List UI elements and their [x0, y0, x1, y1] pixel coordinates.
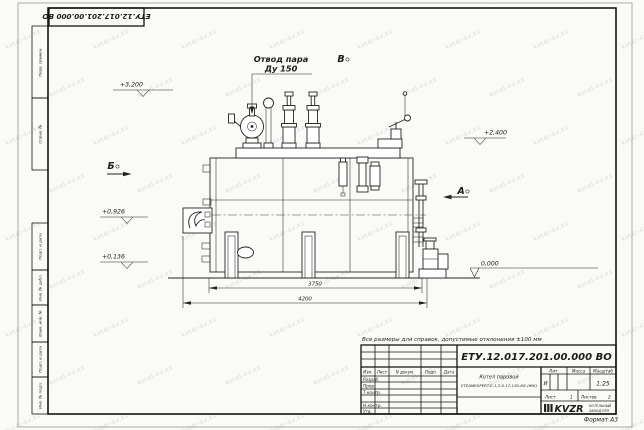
row-tkontr: Т.контр.: [363, 390, 381, 395]
elevation-0136: +0,136: [102, 254, 125, 261]
row-razrab: Разраб.: [363, 377, 379, 382]
margin-label-podp-data-2: Подп. и дата: [38, 346, 43, 373]
steam-valve: [229, 104, 264, 148]
margin-label-inv-dubl: Инв. № дубл.: [38, 274, 43, 301]
company-line2: ЗАВОД РЭП: [589, 409, 610, 413]
safety-valve-1: [282, 92, 297, 148]
doc-number-rotated: ЕТУ.12.017.201.00.000 ВО: [42, 12, 150, 21]
title-doc-number: ЕТУ.12.017.201.00.000 ВО: [461, 352, 612, 363]
lit-value: И: [543, 381, 547, 387]
product-name: Котел паровой: [479, 375, 519, 381]
view-marker-v: В: [337, 54, 344, 65]
row-nkontr: Н.контр.: [363, 403, 382, 408]
elevation-0926: +0,926: [102, 209, 125, 216]
title-block: Все размеры для справок, допустимые откл…: [361, 337, 618, 424]
kvzr-logo-icon: [544, 404, 553, 412]
listov-label: Листов: [580, 395, 597, 400]
col-header-ndokum: N докум.: [396, 370, 415, 375]
boiler-side-view: [168, 92, 480, 278]
reference-note: Все размеры для справок, допустимые откл…: [362, 337, 542, 343]
hdr-massa: Масса: [572, 368, 586, 373]
elevation-3200: +3,200: [120, 82, 143, 89]
logo-text: KVZR: [555, 404, 584, 415]
product-model: STEAMEXPERT-Е-1,2-0,17-130-КБ (ЖК): [461, 383, 538, 388]
col-header-izm: Изм.: [363, 370, 372, 375]
listov-value: 2: [608, 395, 611, 400]
company-line1: КОТЕЛЬНЫЙ: [589, 403, 611, 408]
scale-value: 1:25: [596, 381, 610, 388]
row-utv: Утв.: [363, 409, 372, 414]
margin-label-podp-data-1: Подп. и дата: [38, 233, 43, 260]
dim-overall-text: 4200: [298, 297, 312, 303]
list-label: Лист: [544, 395, 556, 400]
level-gauges: [339, 157, 380, 196]
hdr-masshtab: Масштаб: [593, 368, 613, 373]
dim-span-text: 3750: [308, 282, 322, 288]
hdr-lit: Лит.: [548, 368, 559, 373]
manhole: [238, 247, 254, 258]
elevation-2400: +2,400: [484, 130, 507, 137]
col-header-list: Лист: [376, 370, 388, 375]
rear-piping: [413, 180, 427, 247]
list-value: 1: [570, 395, 573, 400]
lever-valve: [389, 92, 411, 139]
steam-outlet-dn: Ду 150: [264, 64, 298, 74]
margin-label-perv-primen: Перв. примен.: [38, 47, 43, 76]
format-label: Формат А3: [584, 417, 618, 424]
col-header-podp: Подп.: [425, 370, 437, 375]
drawing-canvas: ЕТУ.12.017.201.00.000 ВО Перв. примен. С…: [0, 0, 644, 430]
elevation-0000: 0,000: [481, 261, 499, 268]
col-header-data: Дата: [443, 370, 455, 375]
margin-label-sprav-no: Справ. №: [38, 125, 43, 144]
view-marker-a: А: [456, 186, 464, 197]
engineering-drawing-sheet: kotel-kv.kzkotel-kv.kzkotel-kv.kzkotel-k…: [0, 0, 644, 430]
burner: [183, 165, 212, 262]
safety-valve-2: [306, 92, 321, 148]
margin-label-vzam-inv: Взам. инв. №: [38, 310, 43, 336]
vent-fitting: [264, 98, 274, 148]
elevation-marks: +3,200 +2,400 +0,926 +0,136 0,000: [100, 82, 598, 278]
steam-outlet-label: Отвод пара: [254, 54, 309, 64]
row-prov: Пров.: [363, 383, 375, 388]
view-marker-b: Б: [107, 161, 114, 172]
margin-label-inv-podl: Инв. № подл.: [38, 382, 43, 409]
